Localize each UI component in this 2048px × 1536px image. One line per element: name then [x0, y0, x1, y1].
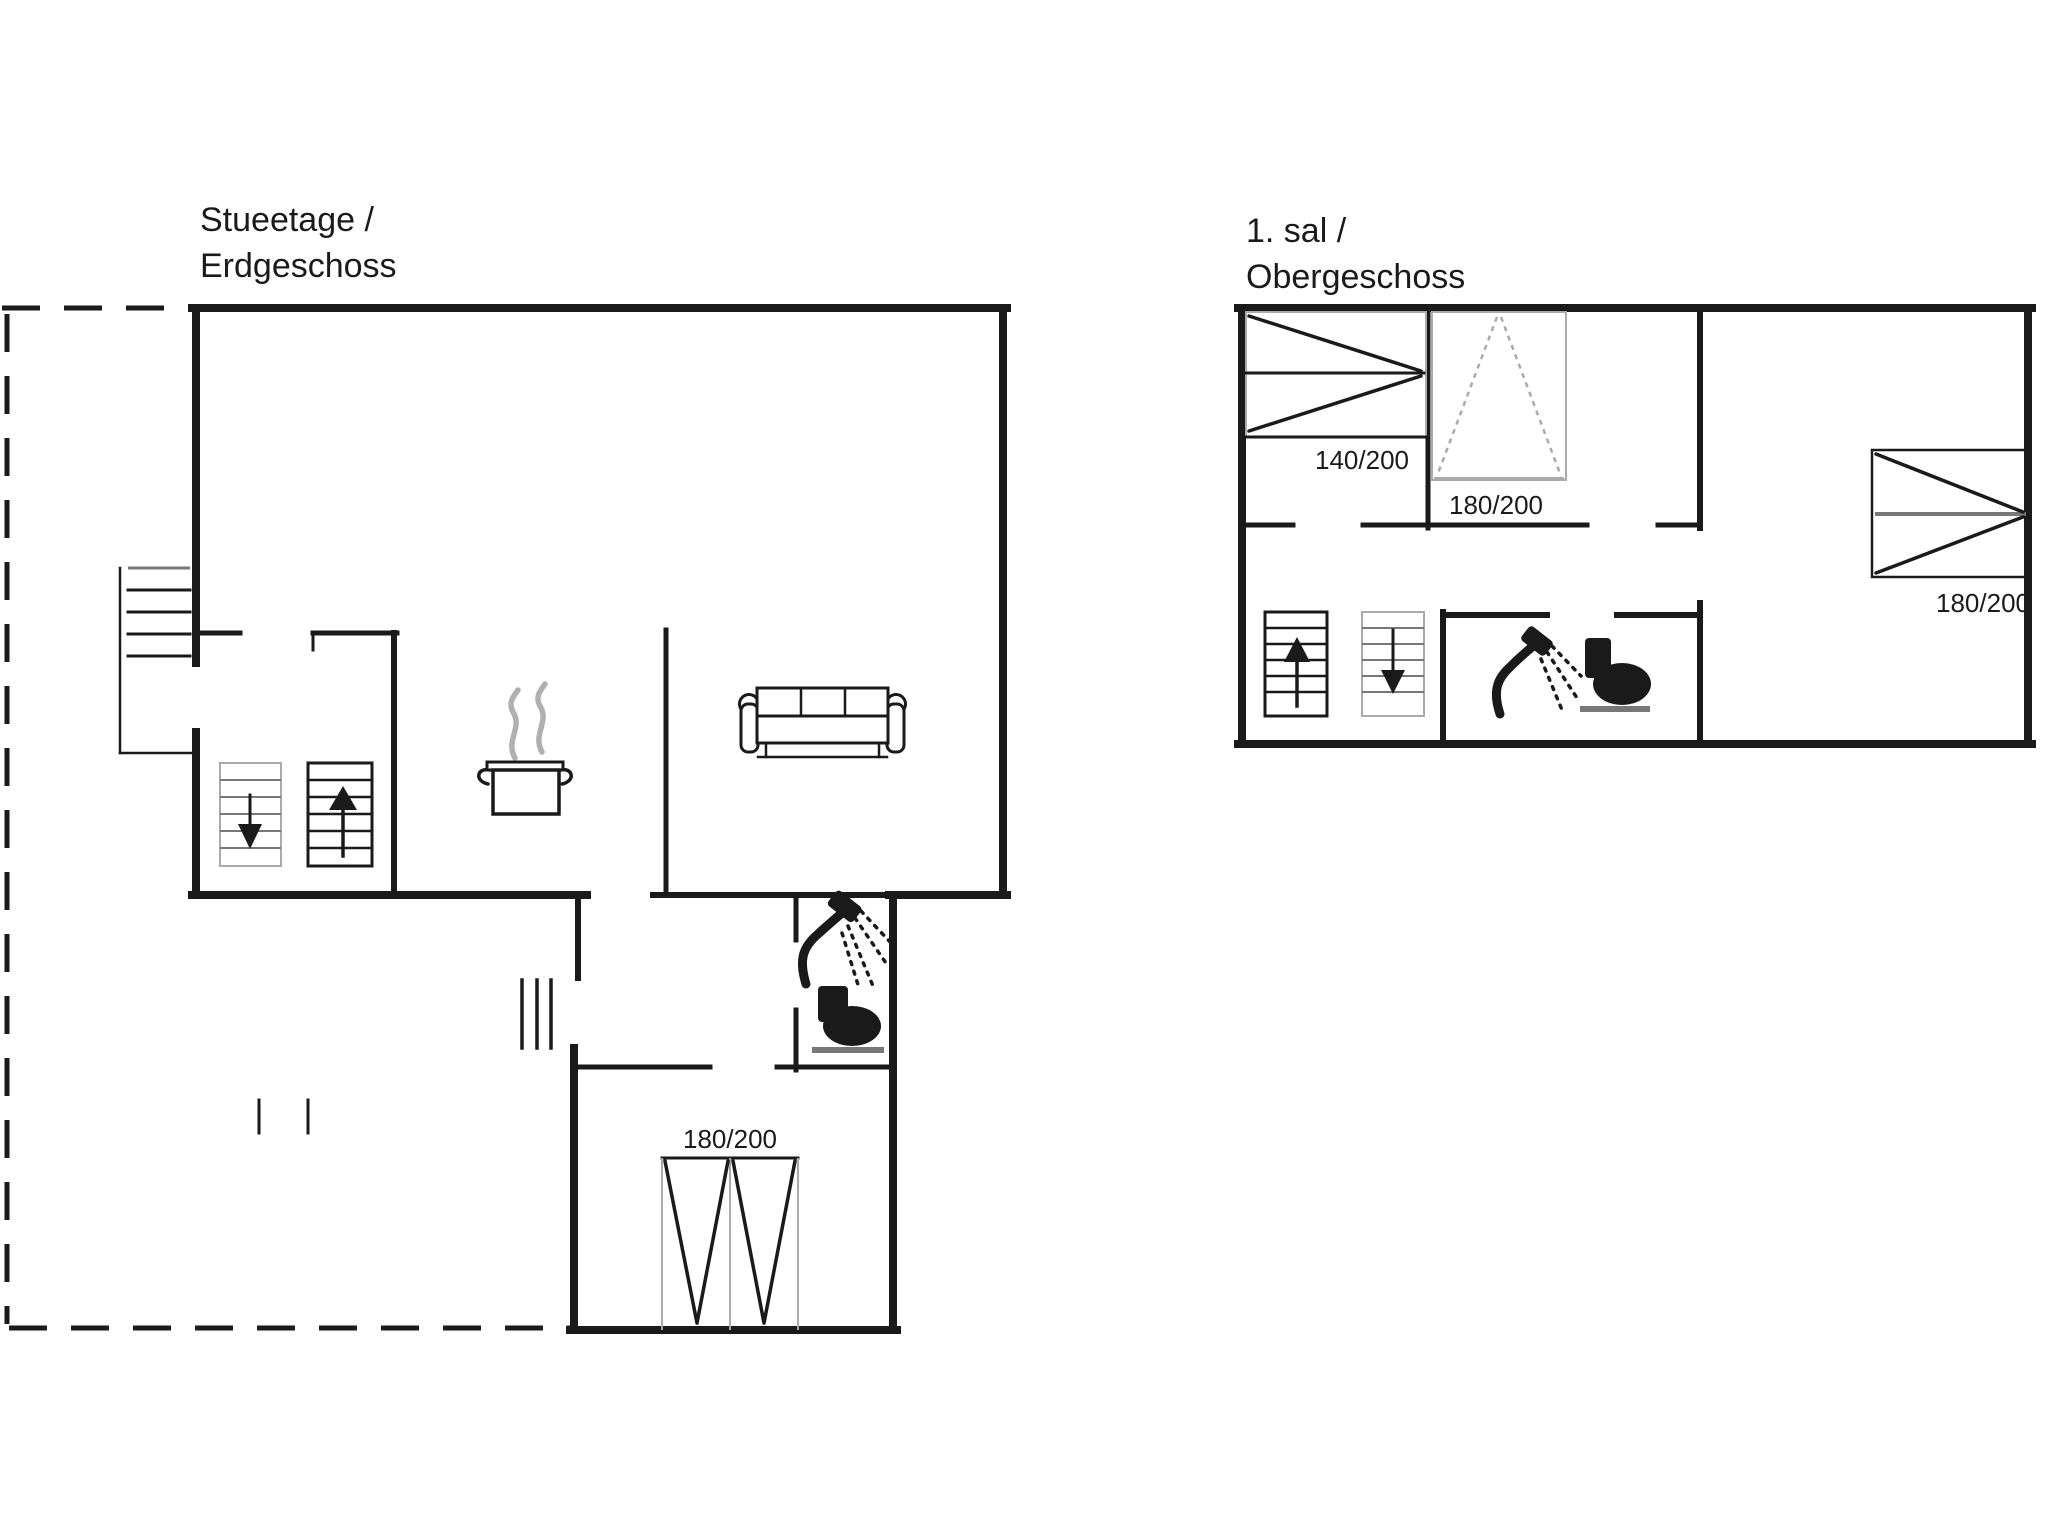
toilet-base [812, 1047, 884, 1053]
staircase-up-icon [308, 763, 372, 866]
steam-wisp [538, 684, 545, 752]
toilet-bowl [1593, 663, 1651, 705]
upper-floor-title-line2: Obergeschoss [1246, 258, 1465, 296]
staircase-down-icon [1362, 612, 1424, 716]
upper-floor-title-line1: 1. sal / [1246, 212, 1347, 250]
entrance-steps-icon [120, 568, 194, 753]
ground-floor-bed-label: 180/200 [683, 1124, 777, 1154]
floorplan-drawing: Stueetage / Erdgeschoss [0, 0, 2048, 1536]
staircase-down-icon [220, 763, 281, 866]
upper-floor-plan: 1. sal / Obergeschoss [1238, 212, 2032, 744]
terrace-outline [2, 308, 570, 1328]
steam-wisp [511, 690, 518, 758]
pot-handle-right [560, 770, 571, 784]
ground-floor-title-line2: Erdgeschoss [200, 247, 397, 285]
bed-140-label: 140/200 [1315, 445, 1409, 475]
toilet-icon [812, 986, 884, 1053]
floorplan-canvas: Stueetage / Erdgeschoss [0, 0, 2048, 1536]
toilet-icon [1580, 638, 1651, 712]
shower-icon [802, 889, 892, 988]
toilet-bowl [823, 1006, 881, 1046]
bed-180-right-icon: 180/200 [1872, 450, 2030, 618]
bed-180-left-icon: 180/200 [1432, 312, 1566, 520]
double-bed-icon: 180/200 [662, 1124, 798, 1330]
stove-pot-icon [479, 684, 571, 814]
staircase-up-icon [1265, 612, 1327, 716]
pot-handle-left [479, 770, 490, 784]
terrace-door-steps-icon [522, 980, 551, 1048]
shower-arm [1496, 647, 1532, 714]
toilet-base [1580, 706, 1650, 712]
shower-arm [802, 913, 842, 984]
shower-icon [1496, 625, 1581, 714]
terrace-marks [259, 1100, 308, 1133]
bed-180-left-label: 180/200 [1449, 490, 1543, 520]
sofa-icon [740, 688, 906, 757]
ground-floor-title-line1: Stueetage / [200, 201, 374, 239]
ground-floor-plan: Stueetage / Erdgeschoss [2, 201, 1007, 1330]
bed-140-icon: 140/200 [1246, 312, 1426, 475]
bed-180-right-label: 180/200 [1936, 588, 2030, 618]
